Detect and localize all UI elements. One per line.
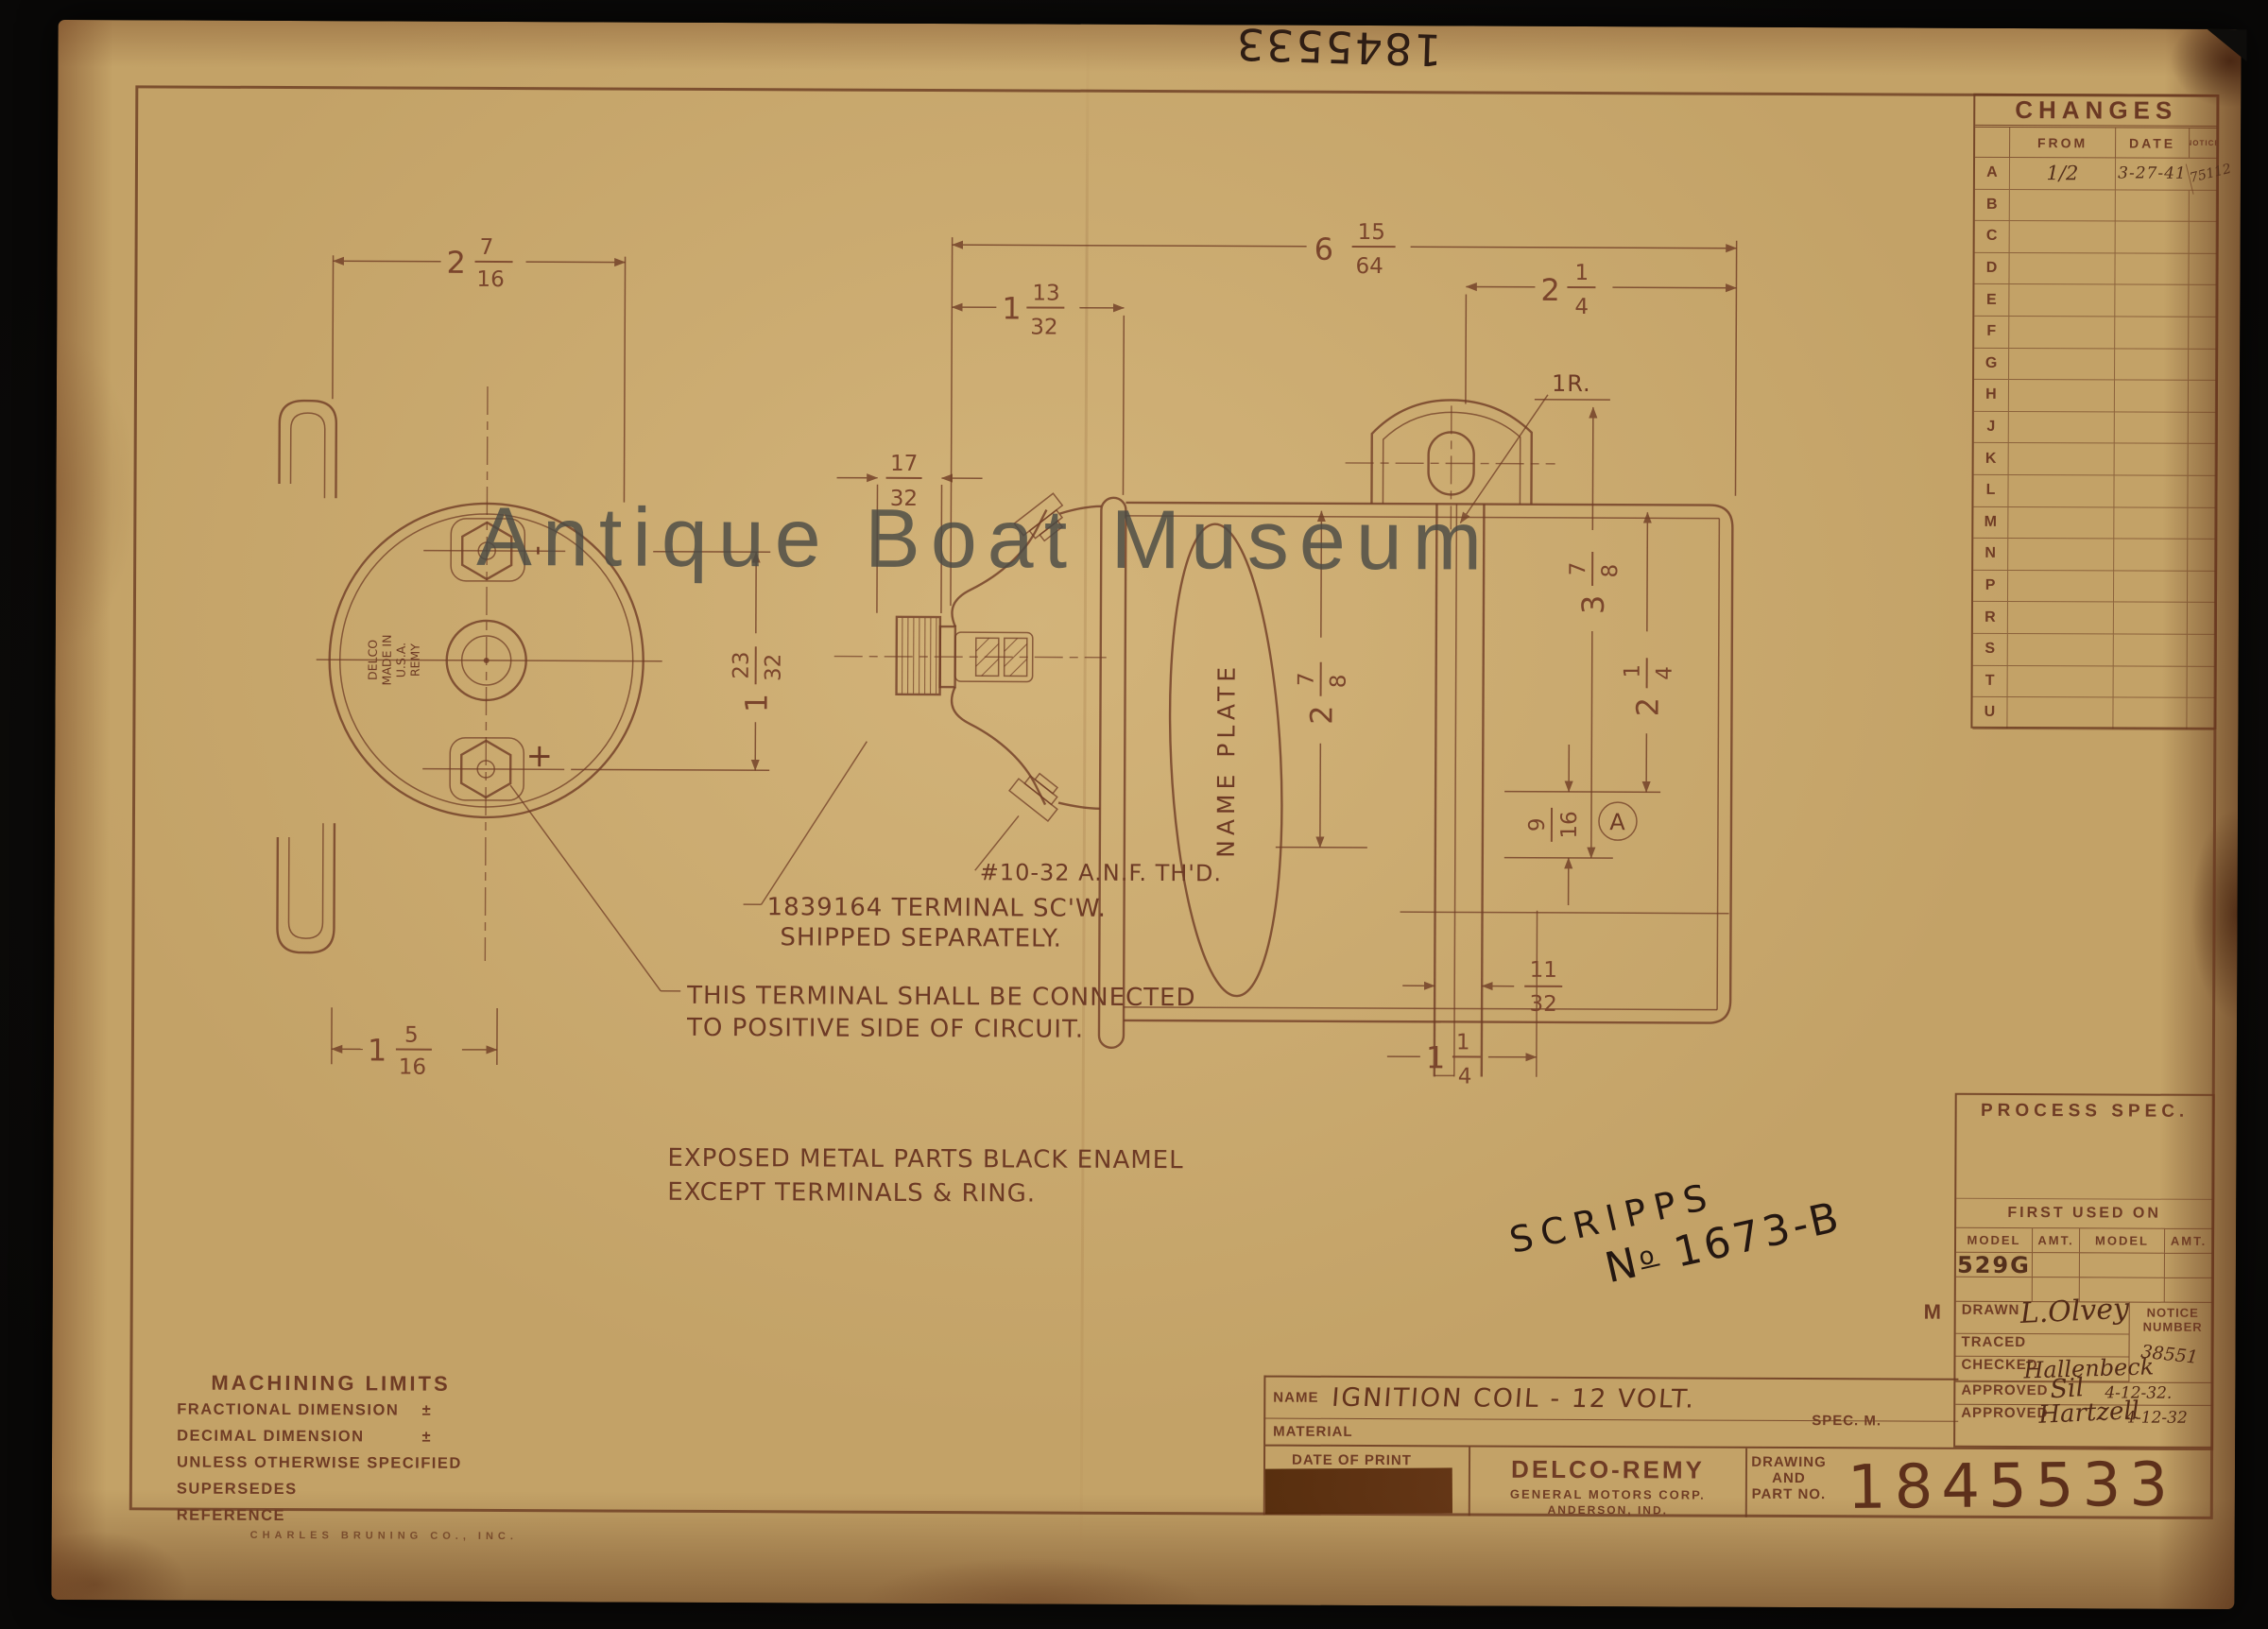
- row-letter: A: [1975, 158, 2009, 189]
- part-number: 1845533: [1847, 1449, 2214, 1523]
- machining-line: UNLESS OTHERWISE SPECIFIED: [177, 1454, 517, 1474]
- changes-row: A 1/2 3-27-41 75112: [1975, 158, 2217, 191]
- changes-row: S: [1973, 634, 2215, 667]
- name-value: IGNITION COIL - 12 VOLT.: [1331, 1383, 1696, 1415]
- company-line2: GENERAL MOTORS CORP.: [1470, 1487, 1745, 1502]
- changes-col-from: FROM: [2009, 128, 2115, 157]
- svg-text:3: 3: [1575, 595, 1611, 615]
- plus-minus: ±: [422, 1429, 433, 1447]
- process-spec-block: PROCESS SPEC. FIRST USED ON MODEL AMT. M…: [1953, 1093, 2215, 1449]
- hub-line3: U.S.A.: [394, 643, 408, 677]
- changes-row: H: [1974, 380, 2216, 413]
- svg-text:16: 16: [476, 267, 504, 292]
- machining-line: REFERENCE: [177, 1507, 517, 1527]
- row-letter: D: [1974, 253, 2008, 284]
- positive-note-line1: THIS TERMINAL SHALL BE CONNECTED: [686, 982, 1196, 1012]
- row-letter: K: [1974, 443, 2008, 474]
- row-letter: G: [1974, 348, 2008, 379]
- traced-label: TRACED: [1962, 1334, 2027, 1350]
- dim-bracket-offset: 2 1 4: [1466, 260, 1737, 404]
- company-name: DELCO-REMY: [1470, 1455, 1745, 1485]
- signature-block: DRAWN TRACED CHECKED NOTICE NUMBER APPRO…: [1955, 1301, 2212, 1426]
- thread-note: #10-32 A.N.F. TH'D.: [980, 859, 1222, 886]
- row-letter: C: [1975, 221, 2009, 252]
- engineering-drawing: DELCO MADE IN U.S.A. REMY + - 2 7 16 1: [0, 0, 2217, 1609]
- leader-lines: [509, 740, 1019, 992]
- row-date: 3-27-41: [2115, 158, 2189, 189]
- material-label: MATERIAL: [1273, 1424, 1352, 1440]
- row-letter: H: [1974, 380, 2008, 411]
- row-notice: 75112: [2186, 154, 2235, 194]
- svg-text:13: 13: [1032, 281, 1059, 305]
- row-from: 1/2: [2009, 158, 2115, 189]
- svg-text:64: 64: [1355, 254, 1383, 279]
- end-view: DELCO MADE IN U.S.A. REMY + -: [277, 386, 663, 962]
- machining-line: DECIMAL DIMENSION±: [177, 1428, 517, 1448]
- row-letter: R: [1973, 602, 2007, 633]
- enamel-note-line2: EXCEPT TERMINALS & RING.: [667, 1178, 1036, 1209]
- changes-row: U: [1972, 697, 2214, 730]
- changes-row: T: [1973, 665, 2215, 698]
- changes-letter-col: [1975, 128, 2009, 157]
- svg-text:17: 17: [890, 452, 918, 476]
- part-number-cell: 1845533: [1830, 1449, 2213, 1519]
- svg-text:1: 1: [1574, 261, 1589, 285]
- drawing-notes: #10-32 A.N.F. TH'D. 1839164 TERMINAL SC'…: [667, 858, 1222, 1209]
- changes-row: F: [1974, 317, 2216, 350]
- svg-text:32: 32: [1529, 992, 1556, 1017]
- spec-label: SPEC. M.: [1812, 1413, 1881, 1429]
- drawing-part-label: AND: [1747, 1470, 1830, 1486]
- traced-row: TRACED: [1956, 1334, 2129, 1358]
- changes-title: CHANGES: [1975, 95, 2217, 129]
- svg-text:1: 1: [738, 694, 774, 713]
- svg-text:1: 1: [368, 1032, 387, 1068]
- svg-text:2: 2: [1303, 705, 1339, 725]
- machining-line: SUPERSEDES: [177, 1481, 517, 1500]
- terminal-screw-note-line1: 1839164 TERMINAL SC'W.: [767, 893, 1107, 923]
- svg-text:2: 2: [1540, 272, 1560, 308]
- changes-row: P: [1973, 571, 2215, 604]
- svg-text:4: 4: [1653, 666, 1677, 680]
- plus-minus: ±: [422, 1402, 433, 1420]
- row-letter: E: [1974, 284, 2008, 316]
- svg-text:5: 5: [404, 1023, 419, 1048]
- svg-text:15: 15: [1358, 220, 1385, 245]
- first-used-on-label: FIRST USED ON: [1956, 1199, 2212, 1228]
- drawing-part-no-cell: DRAWING AND PART NO.: [1745, 1449, 1830, 1518]
- hub-stamp-text: DELCO MADE IN U.S.A. REMY: [366, 634, 422, 685]
- svg-text:8: 8: [1598, 564, 1623, 578]
- svg-text:1: 1: [1621, 664, 1645, 678]
- date-of-print-label: DATE OF PRINT: [1292, 1452, 1469, 1469]
- col-amt: AMT.: [2164, 1228, 2212, 1253]
- enamel-note-line1: EXPOSED METAL PARTS BLACK ENAMEL: [667, 1144, 1183, 1175]
- svg-text:9: 9: [1525, 817, 1550, 832]
- svg-text:1: 1: [1002, 290, 1022, 326]
- row-letter: L: [1973, 475, 2007, 506]
- dim-tower: 1 13 32: [951, 281, 1124, 495]
- checked-signature: Hallenbeck: [2023, 1353, 2155, 1383]
- dim-left-width: 2 7 16: [332, 234, 625, 502]
- changes-row: G: [1974, 348, 2216, 381]
- row-letter: J: [1974, 412, 2008, 443]
- plus-terminal-mark: +: [525, 737, 554, 775]
- photo-background: DELCO MADE IN U.S.A. REMY + - 2 7 16 1: [0, 0, 2268, 1629]
- approved-label: APPROVED: [1961, 1405, 2048, 1421]
- row-letter: U: [1972, 697, 2006, 729]
- changes-row: D: [1974, 253, 2216, 286]
- svg-text:11: 11: [1530, 958, 1557, 983]
- svg-text:7: 7: [1295, 672, 1319, 686]
- terminal-screw-note-line2: SHIPPED SEPARATELY.: [780, 923, 1062, 952]
- svg-text:2: 2: [1629, 697, 1665, 717]
- svg-text:7: 7: [480, 235, 494, 260]
- svg-text:1: 1: [1426, 1039, 1446, 1075]
- svg-text:4: 4: [1574, 295, 1589, 319]
- svg-text:7: 7: [1566, 562, 1590, 576]
- process-spec-title: PROCESS SPEC.: [1957, 1095, 2213, 1128]
- notice-label: NOTICE: [2130, 1306, 2216, 1320]
- hub-line2: MADE IN: [380, 635, 394, 686]
- nameplate-label: NAME PLATE: [1212, 662, 1241, 858]
- company-cell: DELCO-REMY GENERAL MOTORS CORP. ANDERSON…: [1469, 1447, 1745, 1517]
- row-letter: M: [1973, 506, 2007, 538]
- row-letter: T: [1973, 665, 2007, 696]
- sheet-overlay: DELCO MADE IN U.S.A. REMY + - 2 7 16 1: [0, 0, 2268, 1629]
- changes-row: R: [1973, 602, 2215, 635]
- dim-slot: 9 16 A: [1504, 745, 1661, 906]
- drawing-part-label: DRAWING: [1747, 1454, 1830, 1470]
- row-letter: S: [1973, 634, 2007, 665]
- changes-row: M: [1973, 506, 2215, 540]
- changes-row: L: [1973, 475, 2215, 508]
- datum-marker-a: A: [1609, 809, 1626, 835]
- process-spec-blank: [1956, 1127, 2212, 1200]
- date-stamp: [1265, 1467, 1452, 1514]
- changes-row: J: [1974, 412, 2216, 445]
- row-letter: B: [1975, 189, 2009, 220]
- machining-title: MACHINING LIMITS: [211, 1371, 517, 1397]
- approved2-date: 4-12-32: [2125, 1409, 2188, 1428]
- svg-text:1R.: 1R.: [1552, 370, 1591, 397]
- dim-base: 1 1 4: [1387, 1030, 1537, 1089]
- changes-row: K: [1974, 443, 2216, 476]
- notice-label: NUMBER: [2130, 1320, 2216, 1334]
- svg-text:23: 23: [730, 651, 754, 678]
- row-letter: F: [1974, 317, 2008, 348]
- svg-text:6: 6: [1314, 231, 1334, 267]
- changes-row: E: [1974, 284, 2216, 317]
- col-model: MODEL: [2079, 1227, 2164, 1252]
- top-handwritten-number: 1845533: [1252, 19, 1443, 76]
- changes-row: N: [1973, 539, 2215, 572]
- col-amt: AMT.: [2032, 1227, 2079, 1252]
- printer-credit: CHARLES BRUNING CO., INC.: [250, 1530, 518, 1542]
- dim-height: 3 7 8: [1533, 400, 1624, 858]
- svg-text:4: 4: [1458, 1064, 1472, 1089]
- changes-col-date: DATE: [2115, 128, 2189, 157]
- dim-body: 2 1 4: [1620, 512, 1677, 792]
- positive-note-line2: TO POSITIVE SIDE OF CIRCUIT.: [686, 1014, 1084, 1044]
- row-letter: P: [1973, 571, 2007, 602]
- svg-text:2: 2: [446, 245, 466, 281]
- changes-table: CHANGES FROM DATE NOTICE A 1/2 3-27-41 7…: [1970, 94, 2219, 729]
- svg-text:16: 16: [1557, 811, 1582, 838]
- dim-bracket-width: 1 5 16: [332, 1007, 497, 1080]
- changes-row: C: [1975, 221, 2217, 254]
- row-letter: N: [1973, 539, 2007, 570]
- museum-watermark: Antique Boat Museum: [476, 489, 1492, 590]
- svg-text:1: 1: [1456, 1030, 1470, 1055]
- blueprint-sheet: DELCO MADE IN U.S.A. REMY + - 2 7 16 1: [51, 20, 2241, 1609]
- machining-limits-block: MACHINING LIMITS FRACTIONAL DIMENSION± D…: [177, 1371, 518, 1535]
- hub-line1: DELCO: [366, 640, 380, 680]
- changes-header: FROM DATE NOTICE: [1975, 128, 2217, 159]
- machining-line: FRACTIONAL DIMENSION±: [177, 1401, 517, 1421]
- drawn-signature: L.Olvey: [2019, 1293, 2130, 1330]
- svg-text:16: 16: [399, 1055, 426, 1080]
- approved-label: APPROVED: [1961, 1382, 2048, 1398]
- svg-text:32: 32: [1030, 315, 1057, 339]
- name-label: NAME: [1273, 1390, 1318, 1406]
- company-line3: ANDERSON, IND.: [1470, 1503, 1745, 1518]
- changes-row: B: [1975, 189, 2217, 222]
- drawn-label: DRAWN: [1962, 1302, 2020, 1318]
- model-value: 529G: [1956, 1252, 2032, 1277]
- drawing-part-label: PART NO.: [1747, 1486, 1830, 1502]
- margin-letter: M: [1924, 1300, 1941, 1325]
- hub-line4: REMY: [408, 643, 422, 677]
- svg-text:32: 32: [762, 654, 786, 681]
- svg-text:8: 8: [1327, 675, 1351, 689]
- col-model: MODEL: [1956, 1227, 2032, 1252]
- changes-col-notice: NOTICE: [2189, 129, 2217, 158]
- first-used-on-table: MODEL AMT. MODEL AMT. 529G: [1956, 1227, 2212, 1302]
